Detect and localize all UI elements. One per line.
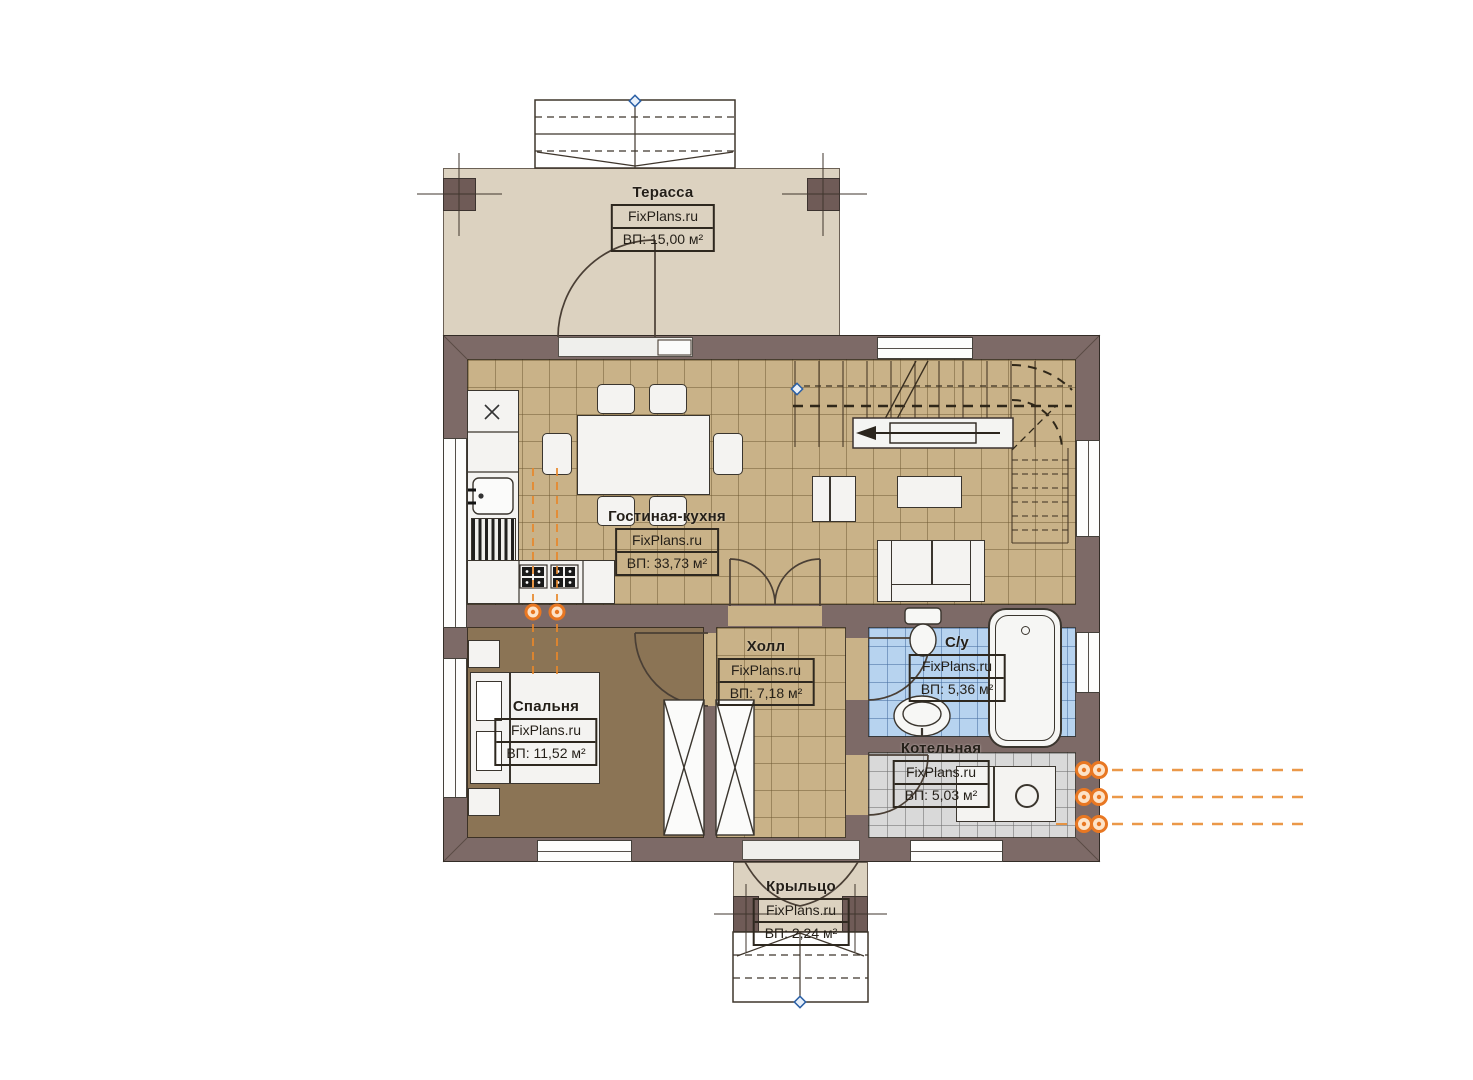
label-box: FixPlans.ru ВП: 33,73 м² xyxy=(615,528,719,576)
window-stairs-top xyxy=(877,337,973,359)
room-label-hall: Холл FixPlans.ru ВП: 7,18 м² xyxy=(718,638,815,706)
bathroom-door-opening xyxy=(846,638,868,700)
room-area: ВП: 33,73 м² xyxy=(617,551,717,574)
bedroom-door-opening xyxy=(704,633,716,706)
label-box: FixPlans.ru ВП: 7,18 м² xyxy=(718,658,815,706)
coffee-table xyxy=(897,476,962,508)
room-name: Спальня xyxy=(494,698,597,715)
entry-door-opening xyxy=(742,840,860,860)
kitchen-counter-bottom xyxy=(467,560,615,604)
window-bathroom-right xyxy=(1076,632,1100,693)
brand-watermark: FixPlans.ru xyxy=(911,656,1004,677)
room-name: Крыльцо xyxy=(753,878,850,895)
room-label-boiler: Котельная FixPlans.ru ВП: 5,03 м² xyxy=(893,740,990,808)
label-box: FixPlans.ru ВП: 2,24 м² xyxy=(753,898,850,946)
floor-plan-canvas: Терасса FixPlans.ru ВП: 15,00 м² Гостина… xyxy=(0,0,1473,1080)
room-name: Терасса xyxy=(611,184,715,201)
brand-watermark: FixPlans.ru xyxy=(895,762,988,783)
window-boiler-bottom xyxy=(910,840,1003,862)
room-name: Холл xyxy=(718,638,815,655)
living-hall-door-opening xyxy=(728,606,822,626)
dining-chair xyxy=(649,384,687,414)
brand-watermark: FixPlans.ru xyxy=(720,660,813,681)
terrace-door-opening xyxy=(558,337,693,357)
room-name: Гостиная-кухня xyxy=(608,508,726,525)
room-area: ВП: 7,18 м² xyxy=(720,681,813,704)
tv-cabinet xyxy=(812,476,856,522)
terrace-post-left xyxy=(443,178,476,211)
window-bedroom-bottom xyxy=(537,840,632,862)
brand-watermark: FixPlans.ru xyxy=(617,530,717,551)
label-box: FixPlans.ru ВП: 11,52 м² xyxy=(494,718,597,766)
brand-watermark: FixPlans.ru xyxy=(755,900,848,921)
label-box: FixPlans.ru ВП: 15,00 м² xyxy=(611,204,715,252)
room-area: ВП: 2,24 м² xyxy=(755,921,848,944)
window-stairs-right xyxy=(1076,440,1100,537)
nightstand xyxy=(468,788,500,816)
sofa xyxy=(877,540,985,602)
room-name: С/у xyxy=(909,634,1006,651)
dining-table xyxy=(577,415,710,495)
boiler-door-opening xyxy=(846,755,868,815)
kitchen-appliance-hatched xyxy=(471,518,516,562)
room-label-porch: Крыльцо FixPlans.ru ВП: 2,24 м² xyxy=(753,878,850,946)
room-label-bathroom: С/у FixPlans.ru ВП: 5,36 м² xyxy=(909,634,1006,702)
room-label-living: Гостиная-кухня FixPlans.ru ВП: 33,73 м² xyxy=(608,508,726,576)
terrace-post-right xyxy=(807,178,840,211)
room-label-bedroom: Спальня FixPlans.ru ВП: 11,52 м² xyxy=(494,698,597,766)
room-label-terrace: Терасса FixPlans.ru ВП: 15,00 м² xyxy=(611,184,715,252)
label-box: FixPlans.ru ВП: 5,03 м² xyxy=(893,760,990,808)
room-area: ВП: 5,03 м² xyxy=(895,783,988,806)
window-bedroom-left xyxy=(443,658,467,798)
dining-chair xyxy=(597,384,635,414)
brand-watermark: FixPlans.ru xyxy=(496,720,595,741)
terrace-steps xyxy=(535,100,735,168)
label-box: FixPlans.ru ВП: 5,36 м² xyxy=(909,654,1006,702)
nightstand xyxy=(468,640,500,668)
window-living-left xyxy=(443,438,467,628)
brand-watermark: FixPlans.ru xyxy=(613,206,713,227)
dining-chair xyxy=(542,433,572,475)
dining-chair xyxy=(713,433,743,475)
room-area: ВП: 5,36 м² xyxy=(911,677,1004,700)
room-area: ВП: 15,00 м² xyxy=(613,227,713,250)
room-area: ВП: 11,52 м² xyxy=(496,741,595,764)
room-name: Котельная xyxy=(893,740,990,757)
